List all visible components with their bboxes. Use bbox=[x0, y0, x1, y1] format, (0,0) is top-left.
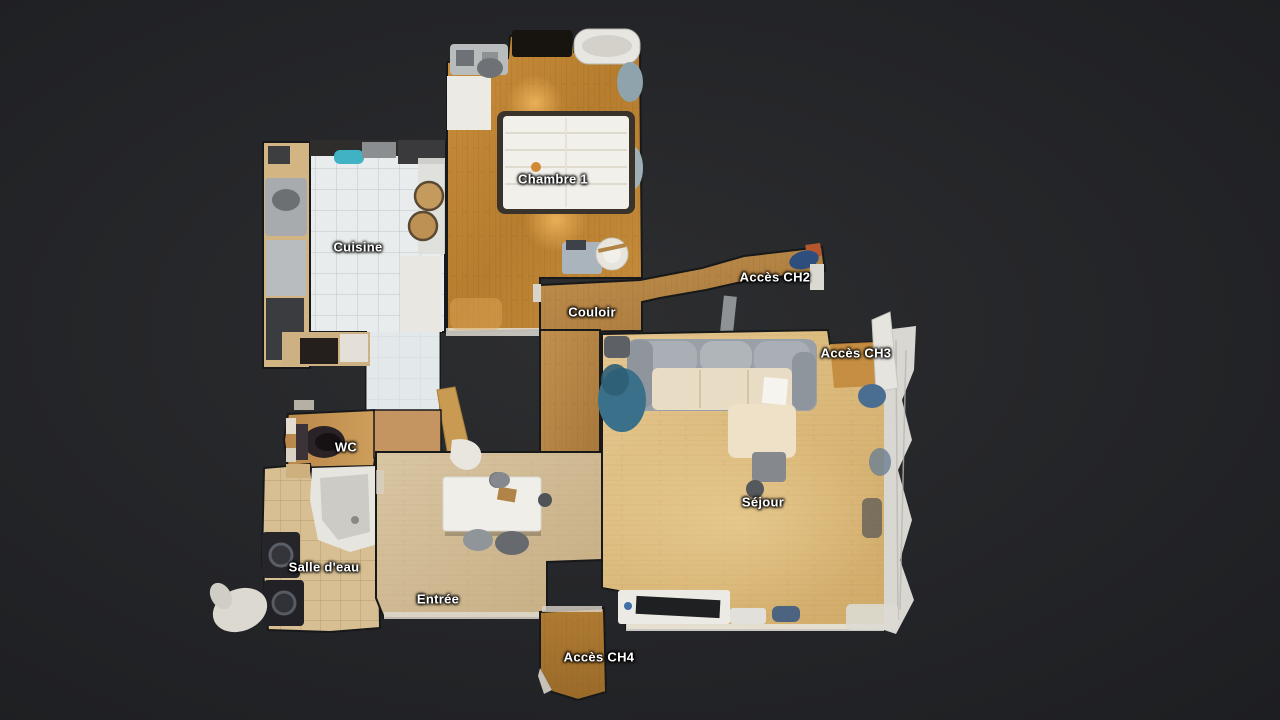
clothes-item bbox=[617, 62, 643, 102]
ch2-door-frame bbox=[810, 264, 824, 290]
entree-baseboard bbox=[384, 612, 546, 619]
sejour-baseboard bbox=[626, 624, 884, 631]
room-label-salle-deau[interactable]: Salle d'eau bbox=[289, 560, 360, 575]
kitchen-lower-cabinet bbox=[282, 332, 370, 366]
room-label-couloir[interactable]: Couloir bbox=[568, 305, 616, 320]
floorplan-viewport[interactable]: Chambre 1 Cuisine Accès CH2 Couloir Accè… bbox=[0, 0, 1280, 720]
floorplan-canvas[interactable] bbox=[0, 0, 1280, 720]
room-label-acces-ch4[interactable]: Accès CH4 bbox=[564, 650, 635, 665]
room-label-acces-ch2[interactable]: Accès CH2 bbox=[740, 270, 811, 285]
bed bbox=[497, 111, 635, 214]
desk bbox=[447, 76, 491, 130]
rug-light-patch bbox=[450, 298, 502, 330]
entree-top-strip bbox=[374, 410, 441, 458]
room-label-chambre1[interactable]: Chambre 1 bbox=[518, 172, 588, 187]
room-label-entree[interactable]: Entrée bbox=[417, 592, 459, 607]
headboard bbox=[512, 30, 572, 57]
room-label-cuisine[interactable]: Cuisine bbox=[333, 240, 382, 255]
desk-chair bbox=[477, 58, 503, 78]
room-label-acces-ch3[interactable]: Accès CH3 bbox=[821, 346, 892, 361]
room-salle-deau bbox=[205, 464, 380, 640]
bassinet bbox=[574, 29, 640, 64]
blue-fabric bbox=[858, 384, 886, 408]
room-label-wc[interactable]: WC bbox=[335, 440, 357, 455]
teal-counter-item bbox=[334, 150, 364, 164]
room-label-sejour[interactable]: Séjour bbox=[742, 495, 784, 510]
hat-boxes bbox=[596, 238, 628, 270]
dryer bbox=[264, 580, 304, 626]
paper-on-sofa bbox=[762, 377, 788, 405]
sofa-chaise bbox=[728, 404, 796, 458]
kitchen-counter-mid bbox=[266, 240, 306, 296]
sejour-door-panel bbox=[720, 295, 737, 333]
room-wc bbox=[284, 400, 378, 468]
kitchen-sink bbox=[265, 178, 307, 236]
shower bbox=[310, 466, 378, 552]
kitchen-column-white bbox=[400, 256, 442, 332]
corner-gray-item bbox=[604, 336, 630, 358]
blue-floor-item bbox=[772, 606, 800, 622]
